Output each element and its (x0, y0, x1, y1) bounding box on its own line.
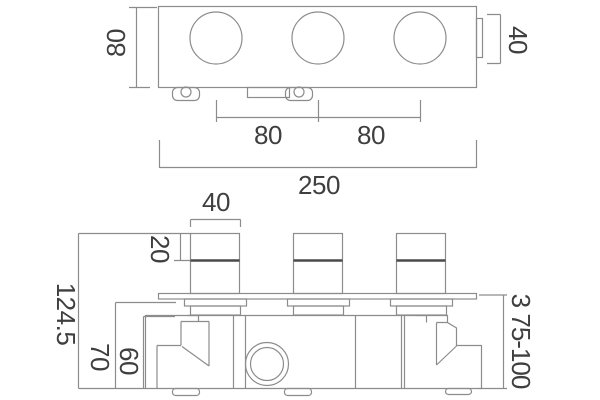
handle-2 (294, 234, 343, 294)
escutcheon-1 (185, 299, 247, 315)
mounting-lugs (173, 87, 313, 101)
dim-lines-overall-width (160, 140, 477, 168)
valve-body-outline (146, 316, 482, 389)
overall-width-label: 250 (298, 172, 340, 198)
top-view (129, 7, 501, 169)
handle-width-label: 40 (202, 189, 230, 215)
outlet-port (246, 343, 289, 386)
control-hole-1 (190, 12, 242, 64)
overall-height-label: 124.5 (53, 283, 79, 346)
handle-cap-height-label: 20 (147, 235, 173, 263)
valve-body-plan-outline (159, 7, 477, 88)
escutcheon-2 (288, 299, 350, 315)
handle-3 (397, 234, 446, 294)
left-inlet-profile (157, 316, 209, 389)
control-hole-3 (394, 12, 446, 64)
hole-spacing-label-2: 80 (357, 122, 385, 148)
dim-lines-fixing-depth (479, 295, 507, 389)
fixing-depth-range-label: 3 75-100 (508, 294, 534, 389)
top-body-depth-label: 80 (103, 29, 129, 57)
plate-to-base-label: 70 (87, 343, 113, 371)
side-connection-tab (477, 19, 483, 58)
top-side-tab-label: 40 (505, 26, 531, 54)
hole-spacing-label-1: 80 (254, 122, 282, 148)
dim-lines-handle-width (191, 220, 241, 228)
right-inlet-profile (416, 316, 457, 366)
body-feet (173, 389, 472, 396)
dim-lines-side-tab (487, 15, 501, 64)
dim-lines-body-depth (129, 7, 157, 88)
body-height-label: 60 (116, 347, 142, 375)
wall-plate (159, 294, 477, 300)
control-hole-2 (292, 12, 344, 64)
technical-drawing-canvas: 80 40 80 80 250 40 20 124.5 70 60 3 75-1… (0, 0, 600, 400)
escutcheon-3 (391, 299, 453, 315)
body-section-lines (234, 316, 405, 389)
dim-lines-hole-spacing (217, 100, 421, 122)
handle-1 (191, 234, 240, 294)
dim-lines-body-height (144, 317, 176, 389)
